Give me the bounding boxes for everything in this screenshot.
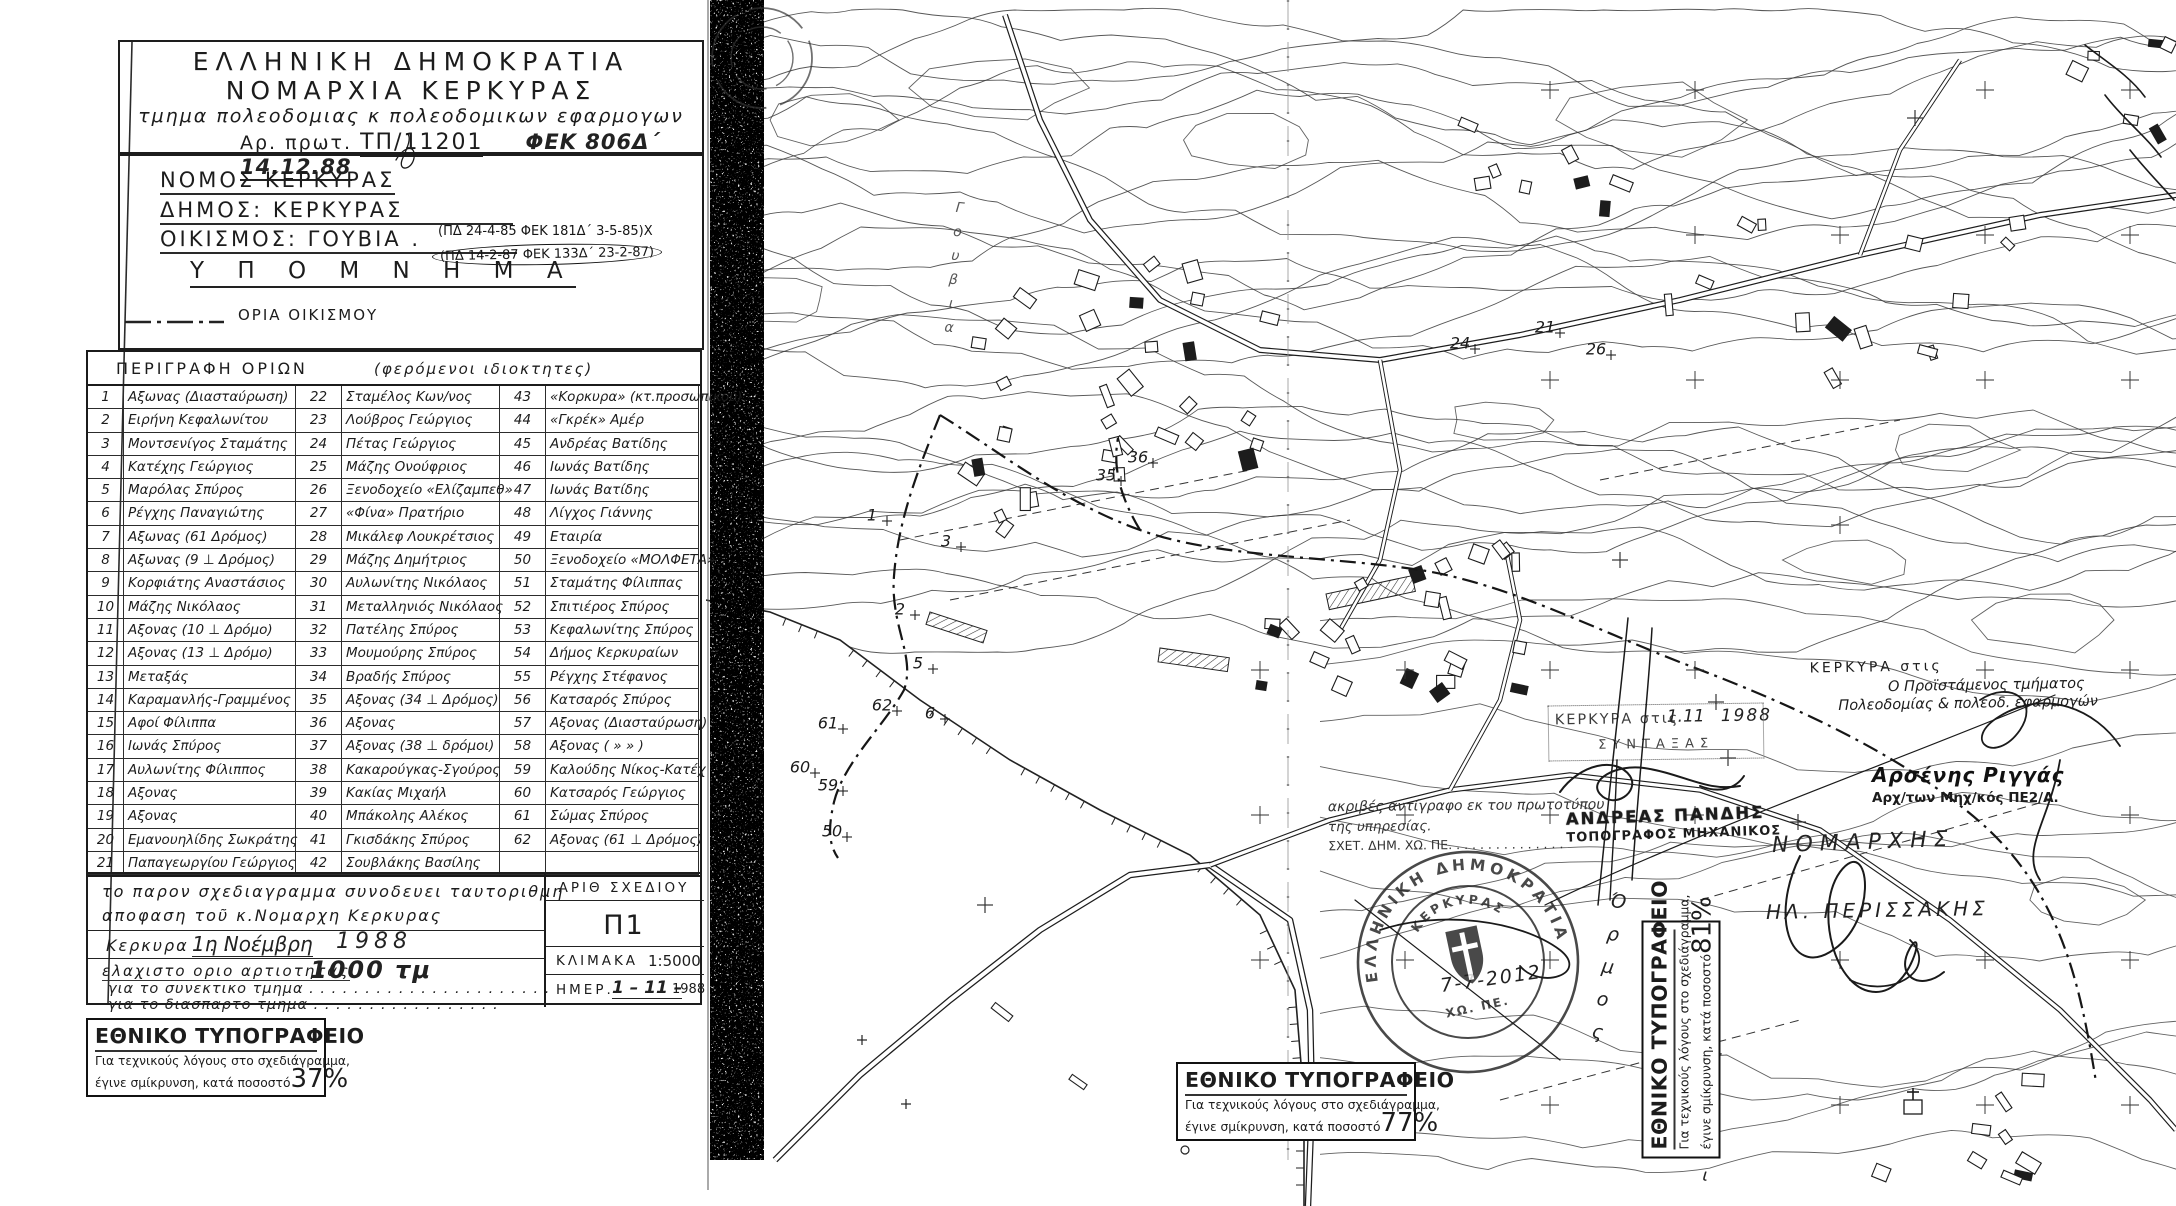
boundary-point-number: 5: [913, 654, 923, 673]
owner-name: Μικάλεφ Λουκρέτσιος: [342, 526, 500, 549]
owner-name: Αξονας (10 ⊥ Δρόμο): [124, 619, 296, 642]
copy-note-line3: ΣΧΕΤ. ΔΗΜ. ΧΩ. ΠΕ. . . . . . . . . . . .…: [1328, 836, 1605, 853]
print-office-title: ΕΘΝΙΚΟ ΤΥΠΟΓΡΑΦΕΙΟ: [1185, 1068, 1407, 1096]
owner-number: 18: [88, 782, 124, 805]
print-office-line1: Για τεχνικούς λόγους στο σχεδιάγραμμα,: [1185, 1098, 1407, 1112]
scale-label: ΚΛΙΜΑΚΑ: [556, 953, 638, 969]
owners-table: ΠΕΡΙΓΡΑΦΗ ΟΡΙΩΝ (φερόμενοι ιδιοκτητες) 1…: [86, 350, 702, 877]
owner-name: Εταιρία: [546, 526, 699, 549]
kerkyra-stis-date: 1.11: [1667, 706, 1705, 727]
dept-head-title: Ο Προϊστάμενος τμήματος: [1888, 675, 2098, 695]
print-office-pct-77: 77%: [1380, 1112, 1438, 1134]
owner-number: 14: [88, 689, 124, 712]
owner-number: 11: [88, 619, 124, 642]
owner-name: Ιωνάς Βατίδης: [546, 456, 699, 479]
owner-number: 34: [296, 666, 342, 689]
riggas-title: Αρχ/των Μηχ/κός ΠΕ2/Α.: [1872, 790, 2064, 806]
owner-name: «Γκρέκ» Αμέρ: [546, 409, 699, 432]
synektiko-line: για το συνεκτικο τμημα . . . . . . . . .…: [108, 981, 550, 997]
owner-name: Μοντσενίγος Σταμάτης: [124, 433, 296, 456]
boundary-point-number: 26: [1586, 340, 1606, 359]
owner-number: 52: [500, 596, 546, 619]
owner-name: Σώμας Σπύρος: [546, 805, 699, 828]
owner-name: Πατέλης Σπύρος: [342, 619, 500, 642]
legend-title: Υ Π Ο Μ Ν Η Μ Α: [190, 258, 576, 288]
date-hand: 1η Νοέμβρη: [192, 932, 313, 957]
kerkyra-stis-year: 1988: [1721, 705, 1773, 726]
owner-number: 16: [88, 735, 124, 758]
owner-name: Ρέγχης Στέφανος: [546, 666, 699, 689]
print-office-title: ΕΘΝΙΚΟ ΤΥΠΟΓΡΑΦΕΙΟ: [95, 1024, 317, 1052]
owner-name: Λίγχος Γιάννης: [546, 502, 699, 525]
boundary-point-number: 2: [895, 600, 905, 619]
owners-table-body: 1Αξωνας (Διασταύρωση)22Σταμέλος Κων/νος4…: [88, 386, 700, 875]
boundary-point-number: 50: [822, 822, 842, 841]
date-value-year: 1988: [672, 982, 705, 997]
owner-name: «Φίνα» Πρατήριο: [342, 502, 500, 525]
owner-name: Κακίας Μιχαήλ: [342, 782, 500, 805]
print-office-title: ΕΘΝΙΚΟ ΤΥΠΟΓΡΑΦΕΙΟ: [1648, 930, 1676, 1150]
owner-number: 38: [296, 759, 342, 782]
owner-number: 40: [296, 805, 342, 828]
protocol-label: Αρ. πρωτ.: [240, 132, 352, 154]
ormos-label: Όρμος: [1583, 889, 1631, 1055]
owner-name: Μάζης Νικόλαος: [124, 596, 296, 619]
owner-name: Μάζης Ονούφριος: [342, 456, 500, 479]
department-head-stamp: ΚΕΡΚΥΡΑ στις Ο Προϊστάμενος τμήματος Πολ…: [1810, 655, 2099, 714]
owner-name: Κατσαρός Σπύρος: [546, 689, 699, 712]
owner-name: Μεταλληνιός Νικόλαος: [342, 596, 500, 619]
owner-name: Αξονας (61 ⊥ Δρόμος): [546, 829, 699, 852]
owner-number: 29: [296, 549, 342, 572]
owner-name: Δήμος Κερκυραίων: [546, 642, 699, 665]
owner-number: 17: [88, 759, 124, 782]
boundary-point-number: 24: [1450, 334, 1470, 353]
date-label: ΗΜΕΡ.: [556, 982, 614, 998]
boundary-point-number: 1: [867, 506, 877, 525]
department-title: τμημα πολεοδομιας κ πολεοδομικων εφαρμογ…: [120, 105, 702, 127]
owner-number: 56: [500, 689, 546, 712]
owner-number: 39: [296, 782, 342, 805]
owner-number: 45: [500, 433, 546, 456]
diasparto-line: για το διασπαρτο τμημα . . . . . . . . .…: [108, 997, 499, 1013]
nomarxis-label: ΝΟΜΑΡΧΗΣ: [1772, 827, 1955, 858]
round-stamp: ΕΛΛΗΝΙΚΗ ΔΗΜΟΚΡΑΤΙΑ ΚΕΡΚΥΡΑΣ ΧΩ. ΠΕ.: [1338, 832, 1599, 1093]
print-office-line2: έγινε σμίκρυνση, κατά ποσοστό: [1700, 954, 1714, 1149]
owner-name: Ανδρέας Βατίδης: [546, 433, 699, 456]
owner-name: Βραδής Σπύρος: [342, 666, 500, 689]
owner-name: Αξονας (34 ⊥ Δρόμος): [342, 689, 500, 712]
owner-number: 2: [88, 409, 124, 432]
owner-number: 30: [296, 572, 342, 595]
owner-number: 23: [296, 409, 342, 432]
plan-rule-3: [546, 974, 704, 975]
protocol-number: ΤΠ/11201: [360, 130, 483, 157]
owner-number: 36: [296, 712, 342, 735]
stamp-shield-icon: [1445, 925, 1488, 986]
plan-rule-2: [546, 946, 704, 947]
notes-box: το παρον σχεδιαγραμμα συνοδευει ταυτοριθ…: [86, 872, 702, 1005]
round-stamp-ring-text: ΕΛΛΗΝΙΚΗ ΔΗΜΟΚΡΑΤΙΑ: [1342, 836, 1572, 985]
owner-number: 47: [500, 479, 546, 502]
gouvia-label-top: Γουβια: [940, 200, 968, 345]
owner-number: 53: [500, 619, 546, 642]
owner-number: 12: [88, 642, 124, 665]
owner-number: 32: [296, 619, 342, 642]
owner-name: Αξονας ( » » ): [546, 735, 699, 758]
owner-name: Μπάκολης Αλέκος: [342, 805, 500, 828]
plan-number-value: Π1: [546, 910, 702, 941]
owner-number: 41: [296, 829, 342, 852]
boundary-point-number: 21: [1535, 318, 1555, 337]
owner-name: Καραμανλής-Γραμμένος: [124, 689, 296, 712]
owner-number: 28: [296, 526, 342, 549]
owner-name: Εμανουηλίδης Σωκράτης: [124, 829, 296, 852]
owner-name: Σπιτιέρος Σπύρος: [546, 596, 699, 619]
owner-name: Αυλωνίτης Φίλιππος: [124, 759, 296, 782]
owner-name: Ιωνάς Σπύρος: [124, 735, 296, 758]
owner-name: Αξωνας (61 Δρόμος): [124, 526, 296, 549]
owner-name: Μαρόλας Σπύρος: [124, 479, 296, 502]
owner-name: Αυλωνίτης Νικόλαος: [342, 572, 500, 595]
owner-name: Ρέγχης Παναγιώτης: [124, 502, 296, 525]
owner-name: Γκισδάκης Σπύρος: [342, 829, 500, 852]
owner-name: Ξενοδοχείο «ΜΟΛΦΕΤΑ»: [546, 549, 699, 572]
owner-number: 25: [296, 456, 342, 479]
owner-name: Αξονας: [124, 782, 296, 805]
owner-number: 6: [88, 502, 124, 525]
owner-name: Αξωνας (Διασταύρωση): [124, 386, 296, 409]
owner-name: Μάζης Δημήτριος: [342, 549, 500, 572]
kerkyra-date-stamp: ΚΕΡΚΥΡΑ στις 1.11 1988 ΣΥΝΤΑΞΑΣ: [1548, 702, 1765, 761]
print-office-pct-81: 81%: [1692, 896, 1714, 954]
owner-name: Σταμέλος Κων/νος: [342, 386, 500, 409]
dimos-line: ΔΗΜΟΣ: ΚΕΡΚΥΡΑΣ: [160, 198, 513, 225]
owner-number: 58: [500, 735, 546, 758]
owner-name: «Κορκυρα» (κτ.προσωπικού): [546, 386, 699, 409]
owner-number: 9: [88, 572, 124, 595]
nomos-line: ΝΟΜΟΣ ΚΕΡΚΥΡΑΣ: [160, 168, 395, 195]
owner-number: 15: [88, 712, 124, 735]
min-area-value: 1000 τμ: [310, 956, 432, 984]
owner-number: 44: [500, 409, 546, 432]
owner-name: Αξονας: [124, 805, 296, 828]
pd-decree-1: (ΠΔ 24-4-85 ΦΕΚ 181Δ΄ 3-5-85)Χ: [438, 224, 653, 239]
prefecture-title: ΝΟΜΑΡΧΙΑ ΚΕΡΚΥΡΑΣ: [120, 76, 702, 105]
table-header-right: (φερόμενοι ιδιοκτητες): [374, 360, 593, 378]
owner-name: Αφοί Φίλιππα: [124, 712, 296, 735]
owner-name: Μουμούρης Σπύρος: [342, 642, 500, 665]
owner-number: 19: [88, 805, 124, 828]
owner-number: 24: [296, 433, 342, 456]
boundary-point-number: 60: [790, 758, 810, 777]
owner-number: 27: [296, 502, 342, 525]
owner-name: Αξονας: [342, 712, 500, 735]
pandis-title: ΤΟΠΟΓΡΑΦΟΣ ΜΗΧΑΝΙΚΟΣ: [1566, 823, 1781, 845]
owner-number: 60: [500, 782, 546, 805]
owner-name: Λούβρος Γεώργιος: [342, 409, 500, 432]
owner-number: 57: [500, 712, 546, 735]
owner-name: Καλούδης Νίκος-Κατέχ: [546, 759, 699, 782]
boundary-point-number: 3: [941, 532, 951, 551]
owner-number: 7: [88, 526, 124, 549]
owner-number: 22: [296, 386, 342, 409]
print-office-pct-37: 37%: [290, 1068, 348, 1090]
boundary-point-number: 61: [818, 714, 838, 733]
copy-note-line1: ακριβές αντίγραφο εκ του πρωτοτύπου: [1328, 797, 1605, 815]
id-box: ΝΟΜΟΣ ΚΕΡΚΥΡΑΣ ΔΗΜΟΣ: ΚΕΡΚΥΡΑΣ ΟΙΚΙΣΜΟΣ:…: [118, 154, 704, 350]
note-line2: αποφαση τοῦ κ.Νομαρχη Κερκυρας: [102, 906, 442, 925]
owner-number: 51: [500, 572, 546, 595]
owner-name: Αξονας (Διασταύρωση): [546, 712, 699, 735]
owner-number: 49: [500, 526, 546, 549]
owner-number: 48: [500, 502, 546, 525]
owner-name: Πέτας Γεώργιος: [342, 433, 500, 456]
owner-name: Κακαρούγκας-Σγούρος: [342, 759, 500, 782]
owner-number: 1: [88, 386, 124, 409]
owner-name: Κατσαρός Γεώργιος: [546, 782, 699, 805]
owner-number: 10: [88, 596, 124, 619]
owner-name: Αξονας (38 ⊥ δρόμοι): [342, 735, 500, 758]
plan-number-label: ΑΡΙΘ ΣΧΕΔΙΟΥ: [546, 880, 702, 896]
riggas-block: Αρσένης Ριγγάς Αρχ/των Μηχ/κός ΠΕ2/Α.: [1872, 763, 2064, 806]
owner-name: Αξωνας (9 ⊥ Δρόμος): [124, 549, 296, 572]
pandis-stamp: ΑΝΔΡΕΑΣ ΠΑΝΔΗΣ ΤΟΠΟΓΡΑΦΟΣ ΜΗΧΑΝΙΚΟΣ: [1565, 802, 1781, 845]
owner-number: 43: [500, 386, 546, 409]
print-office-line2: έγινε σμίκρυνση, κατά ποσοστό: [1185, 1120, 1380, 1134]
owner-number: 59: [500, 759, 546, 782]
round-stamp-inner-text: ΚΕΡΚΥΡΑΣ: [1403, 882, 1511, 936]
owner-number: 3: [88, 433, 124, 456]
year-hand: 1988: [336, 929, 412, 954]
print-office-line1: Για τεχνικούς λόγους στο σχεδιάγραμμα,: [95, 1054, 317, 1068]
svg-text:ΕΛΛΗΝΙΚΗ ΔΗΜΟΚΡΑΤΙΑ: ΕΛΛΗΝΙΚΗ ΔΗΜΟΚΡΑΤΙΑ: [1342, 836, 1572, 985]
kerkyra-stis-label: ΚΕΡΚΥΡΑ στις: [1555, 711, 1680, 729]
pandis-name: ΑΝΔΡΕΑΣ ΠΑΝΔΗΣ: [1565, 802, 1780, 828]
print-office-line1: Για τεχνικούς λόγους στο σχεδιάγραμμα,: [1678, 930, 1692, 1150]
perissakis-name: ΗΛ. ΠΕΡΙΣΣΑΚΗΣ: [1766, 896, 1989, 924]
round-stamp-bottom-text: ΧΩ. ΠΕ.: [1444, 993, 1510, 1020]
note-line1: το παρον σχεδιαγραμμα συνοδευει ταυτοριθ…: [102, 882, 564, 901]
owner-name: Κεφαλωνίτης Σπύρος: [546, 619, 699, 642]
owner-name: Ξενοδοχείο «Ελίζαμπεθ»: [342, 479, 500, 502]
owner-number: 4: [88, 456, 124, 479]
owner-name: Ιωνάς Βατίδης: [546, 479, 699, 502]
syntaxas-label: ΣΥΝΤΑΞΑΣ: [1549, 736, 1763, 754]
owner-number: 8: [88, 549, 124, 572]
owner-name: Μεταξάς: [124, 666, 296, 689]
owner-name: Σταμάτης Φίλιππας: [546, 572, 699, 595]
owner-number: 20: [88, 829, 124, 852]
owner-number: 46: [500, 456, 546, 479]
boundary-point-number: 59: [818, 776, 838, 795]
owner-number: 33: [296, 642, 342, 665]
copy-note-line2: της υπηρεσίας.: [1328, 817, 1605, 835]
print-office-box-81: ΕΘΝΙΚΟ ΤΥΠΟΓΡΑΦΕΙΟ Για τεχνικούς λόγους …: [1642, 921, 1721, 1159]
owner-name: Κατέχης Γεώργιος: [124, 456, 296, 479]
boundary-point-number: 35: [1096, 466, 1116, 485]
header-box: ΕΛΛΗΝΙΚΗ ΔΗΜΟΚΡΑΤΙΑ ΝΟΜΑΡΧΙΑ ΚΕΡΚΥΡΑΣ τμ…: [118, 40, 704, 154]
owner-number: 5: [88, 479, 124, 502]
owner-number: 13: [88, 666, 124, 689]
settlement-boundary-label: ΟΡΙΑ ΟΙΚΙΣΜΟΥ: [238, 306, 378, 324]
certified-copy-note: ακριβές αντίγραφο εκ του πρωτοτύπου της …: [1328, 797, 1605, 853]
print-office-line2: έγινε σμίκρυνση, κατά ποσοστό: [95, 1076, 290, 1090]
dept-head-title2: Πολεοδομίας & πολεοδ. εφαρμογών: [1838, 693, 2098, 714]
owners-table-header: ΠΕΡΙΓΡΑΦΗ ΟΡΙΩΝ (φερόμενοι ιδιοκτητες): [88, 352, 700, 386]
owner-number: 26: [296, 479, 342, 502]
hand-date-note: 7-7-2012: [1439, 961, 1543, 997]
owner-number: 62: [500, 829, 546, 852]
print-office-box-37: ΕΘΝΙΚΟ ΤΥΠΟΓΡΑΦΕΙΟ Για τεχνικούς λόγους …: [86, 1018, 326, 1097]
owner-number: 31: [296, 596, 342, 619]
notes-rule-1: [88, 930, 544, 931]
owner-number: 35: [296, 689, 342, 712]
owner-name: Κορφιάτης Αναστάσιος: [124, 572, 296, 595]
owner-name: Ειρήνη Κεφαλωνίτου: [124, 409, 296, 432]
print-office-box-77: ΕΘΝΙΚΟ ΤΥΠΟΓΡΑΦΕΙΟ Για τεχνικούς λόγους …: [1176, 1062, 1416, 1141]
boundary-point-number: 6: [925, 704, 935, 723]
dept-kerkyra-stis: ΚΕΡΚΥΡΑ στις: [1810, 655, 2098, 676]
scanned-plan-sheet: ΕΛΛΗΝΙΚΗ ΔΗΜΟΚΡΑΤΙΑ ΝΟΜΑΡΧΙΑ ΚΕΡΚΥΡΑΣ τμ…: [0, 0, 2176, 1206]
svg-text:ΚΕΡΚΥΡΑΣ: ΚΕΡΚΥΡΑΣ: [1403, 882, 1511, 936]
boundary-point-number: 62: [872, 696, 892, 715]
plan-rule-1: [546, 900, 704, 901]
republic-title: ΕΛΛΗΝΙΚΗ ΔΗΜΟΚΡΑΤΙΑ: [120, 47, 702, 76]
table-header-left: ΠΕΡΙΓΡΑΦΗ ΟΡΙΩΝ: [116, 359, 308, 378]
owner-name: Αξονας (13 ⊥ Δρόμο): [124, 642, 296, 665]
owner-number: 61: [500, 805, 546, 828]
riggas-name: Αρσένης Ριγγάς: [1872, 763, 2064, 787]
owner-number: 54: [500, 642, 546, 665]
owner-number: 55: [500, 666, 546, 689]
scale-value: 1:5000: [648, 952, 701, 970]
owner-number: 37: [296, 735, 342, 758]
owner-number: 50: [500, 549, 546, 572]
boundary-point-number: 36: [1128, 448, 1148, 467]
